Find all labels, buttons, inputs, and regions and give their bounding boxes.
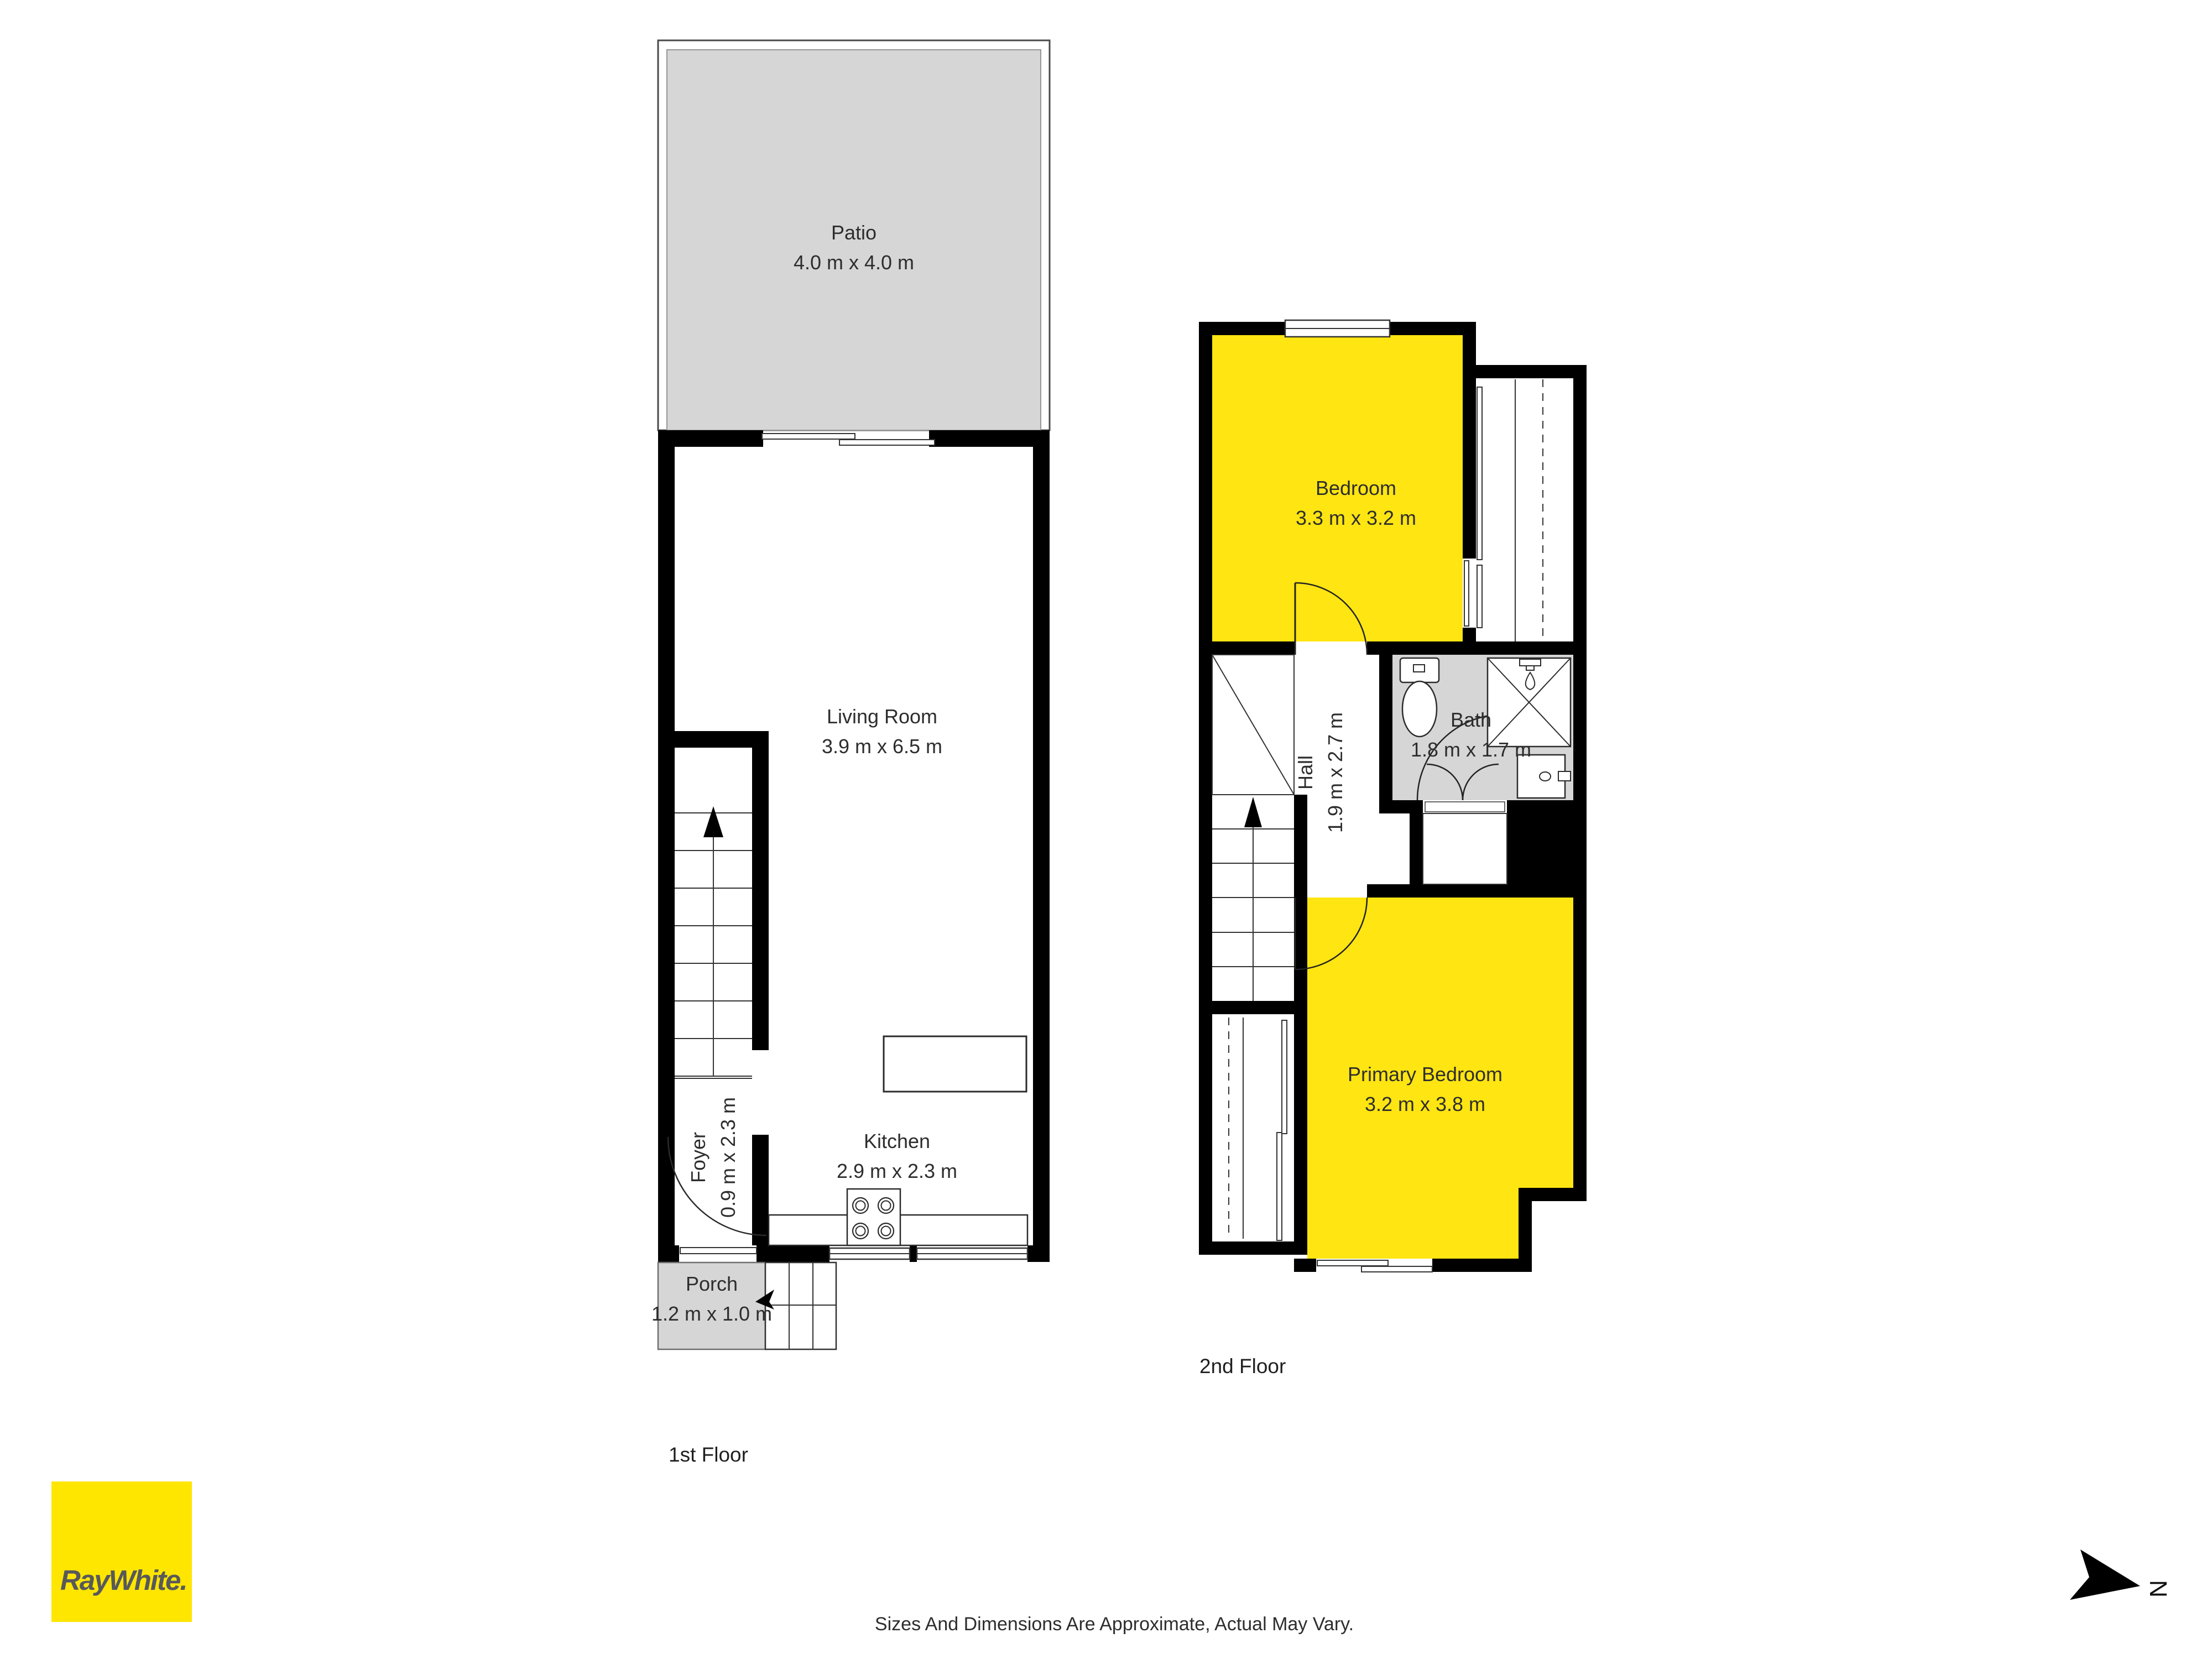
room-name: Bedroom bbox=[1296, 473, 1416, 503]
kitchen-island bbox=[884, 1036, 1026, 1092]
floorplan-drawing bbox=[0, 0, 2212, 1659]
stairs-up-arrow-icon bbox=[1244, 797, 1262, 827]
room-dims: 3.2 m x 3.8 m bbox=[1348, 1089, 1503, 1119]
first-floor-title: 1st Floor bbox=[669, 1443, 748, 1467]
north-arrow-icon bbox=[2070, 1550, 2140, 1600]
kitchen-window bbox=[830, 1248, 1027, 1259]
room-dims: 3.9 m x 6.5 m bbox=[822, 732, 942, 761]
stove-icon bbox=[847, 1189, 900, 1245]
room-name: Patio bbox=[794, 218, 914, 248]
porch-label: Porch 1.2 m x 1.0 m bbox=[651, 1269, 772, 1329]
primary-wardrobe bbox=[1229, 1018, 1287, 1240]
north-label: N bbox=[2144, 1580, 2172, 1598]
room-name: Primary Bedroom bbox=[1348, 1060, 1503, 1089]
second-floor-plan bbox=[1199, 320, 1587, 1272]
room-dims: 1.9 m x 2.7 m bbox=[1321, 712, 1350, 833]
hall-label: Hall 1.9 m x 2.7 m bbox=[1291, 712, 1350, 833]
patio-label: Patio 4.0 m x 4.0 m bbox=[794, 218, 914, 278]
room-name: Living Room bbox=[822, 702, 942, 732]
living-room-label: Living Room 3.9 m x 6.5 m bbox=[822, 702, 942, 761]
room-name: Bath bbox=[1411, 705, 1531, 735]
primary-bedroom-label: Primary Bedroom 3.2 m x 3.8 m bbox=[1348, 1060, 1503, 1119]
raywhite-logo: RayWhite. bbox=[51, 1481, 192, 1622]
bedroom-label: Bedroom 3.3 m x 3.2 m bbox=[1296, 473, 1416, 533]
room-name: Porch bbox=[651, 1269, 772, 1299]
room-dims: 3.3 m x 3.2 m bbox=[1296, 503, 1416, 533]
primary-bedroom-window bbox=[1316, 1259, 1432, 1272]
stairs-up-arrow-icon bbox=[703, 806, 723, 837]
entry-door-panel bbox=[680, 1248, 757, 1254]
closet-threshold bbox=[1425, 802, 1505, 812]
porch-steps bbox=[765, 1262, 836, 1349]
room-dims: 0.9 m x 2.3 m bbox=[713, 1097, 743, 1218]
bedroom-window bbox=[1285, 320, 1390, 337]
second-floor-title: 2nd Floor bbox=[1199, 1355, 1286, 1378]
room-name: Kitchen bbox=[837, 1126, 957, 1156]
room-dims: 2.9 m x 2.3 m bbox=[837, 1156, 957, 1186]
disclaimer-text: Sizes And Dimensions Are Approximate, Ac… bbox=[875, 1614, 1354, 1635]
stair-void bbox=[1212, 655, 1294, 795]
room-dims: 1.8 m x 1.7 m bbox=[1411, 735, 1531, 765]
floorplan-page: Patio 4.0 m x 4.0 m Living Room 3.9 m x … bbox=[0, 0, 2212, 1659]
kitchen-label: Kitchen 2.9 m x 2.3 m bbox=[837, 1126, 957, 1186]
room-name: Foyer bbox=[684, 1097, 713, 1218]
foyer-label: Foyer 0.9 m x 2.3 m bbox=[684, 1097, 743, 1218]
room-name: Hall bbox=[1291, 712, 1321, 833]
bath-label: Bath 1.8 m x 1.7 m bbox=[1411, 705, 1531, 765]
raywhite-logo-text: RayWhite. bbox=[60, 1564, 187, 1597]
stairs-first-floor bbox=[675, 813, 752, 1076]
room-dims: 4.0 m x 4.0 m bbox=[794, 248, 914, 278]
closet bbox=[1423, 813, 1507, 884]
sliding-door bbox=[762, 434, 935, 445]
room-dims: 1.2 m x 1.0 m bbox=[651, 1299, 772, 1329]
